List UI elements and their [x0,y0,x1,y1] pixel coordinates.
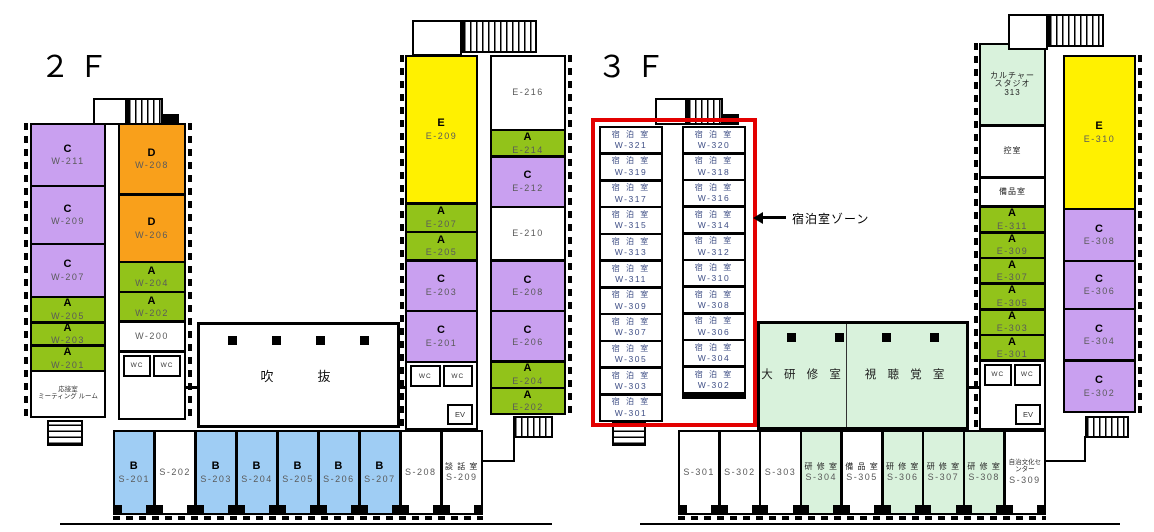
stairs-icon [513,416,553,438]
room-name: 宿 泊 室 [612,184,650,192]
wing-3f-west-right-column: 宿 泊 室W-320宿 泊 室W-318宿 泊 室W-316宿 泊 室W-314… [682,126,746,394]
room-code: E-202 [512,403,544,412]
room-W-309: 宿 泊 室W-309 [601,289,661,313]
room-name: A [1008,337,1017,349]
room-code: E-302 [1084,389,1116,398]
room-W-319: 宿 泊 室W-319 [601,155,661,179]
room-name: 宿 泊 室 [695,317,733,325]
room-code: S-202 [159,468,191,477]
wc-label: WC [123,355,151,377]
stair-vestibule [655,98,687,125]
room-S-202: S-202 [156,432,194,513]
wc-label: WC [410,365,441,387]
room-code: W-318 [698,168,730,177]
room-E-209: EE-209 [407,57,476,202]
room-name: 宿 泊 室 [695,291,733,299]
room-name: A [148,296,157,308]
room-name: A [1008,311,1017,323]
room-code: S-305 [846,473,878,482]
room-name: 談 話 室 [445,463,478,471]
room-E-306: CE-306 [1065,262,1134,308]
stair-vestibule [93,98,127,125]
room-W-312: 宿 泊 室W-312 [684,235,744,259]
room-code: E-304 [1084,337,1116,346]
room-code: E-311 [997,222,1028,231]
room-name: C [524,275,533,287]
room-name: 宿 泊 室 [612,318,650,326]
room-name: 宿 泊 室 [695,237,733,245]
room-W-204: AW-204 [120,263,184,290]
room-name: 研 修 室 [967,463,1000,471]
room-E-310: EE-310 [1065,57,1134,208]
wing-2f-west-left-column: CW-211CW-209CW-207AW-205AW-203AW-201応接室 … [30,123,106,418]
room-name: D [148,217,157,229]
room-name: C [1095,274,1104,286]
room-name: 宿 泊 室 [695,344,733,352]
room-code: W-207 [51,273,85,282]
room-code: E-203 [426,288,458,297]
room-W-211: CW-211 [32,125,104,185]
room-S-302: S-302 [721,432,759,513]
room-S-208: S-208 [402,432,440,513]
room-E-202: AE-202 [492,389,564,413]
room-name: D [148,148,157,160]
room-name: C [64,204,73,216]
room-name: 控室 [1004,147,1022,155]
room-name: A [64,324,73,335]
room-E-308: CE-308 [1065,210,1134,259]
room-name: 宿 泊 室 [695,264,733,272]
wall-block [682,394,746,399]
room-W-303: 宿 泊 室W-303 [601,369,661,393]
room-応接室ミーティングルーム: 応接室 ミーティング ルーム [32,372,104,416]
room-code: W-202 [135,309,169,318]
floor-plan-canvas: ２Ｆ CW-211CW-209CW-207AW-205AW-203AW-201応… [0,0,1154,532]
room-code: W-308 [698,301,730,310]
wing-3f-east-right-column: EE-310CE-308CE-306CE-304CE-302 [1063,55,1136,413]
corridor-line [483,460,515,462]
room-name: E [437,118,445,130]
room-name: 宿 泊 室 [612,211,650,219]
wing-3f-west-left-column: 宿 泊 室W-321宿 泊 室W-319宿 泊 室W-317宿 泊 室W-315… [599,126,663,422]
room-code: E-204 [512,377,544,386]
room-code: S-204 [241,475,273,484]
room-W-209: CW-209 [32,187,104,242]
room-code: W-306 [698,328,730,337]
room-code: W-209 [51,217,85,226]
room-name: A [1008,260,1017,272]
room-code: S-203 [200,475,232,484]
stairs-icon [1085,416,1129,438]
window-wall [188,123,192,420]
room-W-200: W-200 [120,323,184,350]
room-W-315: 宿 泊 室W-315 [601,208,661,232]
window-wall [678,516,1046,520]
floor-3f-title: ３Ｆ [597,42,673,86]
atrium: 吹 抜 [197,322,400,428]
room-S-206: BS-206 [320,432,358,513]
room-name: 研 修 室 [805,463,838,471]
room-W-208: DW-208 [120,125,184,193]
room-S-209: 談 話 室S-209 [443,432,481,513]
room-E-214: AE-214 [492,131,564,155]
room-name: 宿 泊 室 [612,238,650,246]
room-E-309: AE-309 [981,234,1044,257]
room-name: A [1008,285,1017,297]
room-S-303: S-303 [761,432,799,513]
room-name: C [524,170,533,182]
wall-block [721,114,739,125]
room-S-301: S-301 [680,432,718,513]
room-code: S-309 [1009,476,1041,485]
room-wc: WCWCEV [407,363,476,428]
room-code: S-306 [887,473,919,482]
corridor-line [399,386,406,389]
room-code: W-301 [615,409,647,418]
room-S-308: 研 修 室S-308 [965,432,1003,513]
room-name: B [130,461,139,473]
room-name: 宿 泊 室 [612,345,650,353]
room-code: W-317 [615,195,647,204]
room-name: カルチャー スタジオ 313 [990,72,1035,97]
room-name: 宿 泊 室 [612,372,650,380]
room-W-321: 宿 泊 室W-321 [601,128,661,152]
room-name: A [1008,234,1017,246]
stairs-icon [127,98,163,125]
room-code: W-310 [698,274,730,283]
elevator-label: EV [1015,404,1041,425]
room-E-216: E-216 [492,57,564,129]
room-code: E-307 [997,273,1029,282]
wing-2f-east-right-column: E-216AE-214CE-212E-210CE-208CE-206AE-204… [490,55,566,415]
room-S-304: 研 修 室S-304 [802,432,840,513]
room-E-311: AE-311 [981,208,1044,231]
room-code: W-320 [698,141,730,150]
room-S-309: 自治文化センターS-309 [1006,432,1044,513]
atrium-label: 吹 抜 [260,366,336,385]
room-name: 大 研 修 室 [761,369,845,381]
room-S-203: BS-203 [197,432,235,513]
wall-block [161,114,179,125]
room-code: E-309 [997,247,1029,256]
room-name: 応接室 ミーティング ルーム [38,387,98,401]
room-E-203: CE-203 [407,262,476,310]
room-S-205: BS-205 [279,432,317,513]
room-name: 研 修 室 [886,463,919,471]
room-name: C [437,325,446,337]
room-code: S-206 [323,475,355,484]
room-name: C [64,259,73,271]
wing-2f-south-row: BS-201S-202BS-203BS-204BS-205BS-206BS-20… [113,430,483,515]
room-name: 研 修 室 [927,463,960,471]
room-name: 宿 泊 室 [695,371,733,379]
room-code: E-210 [512,229,544,238]
elevator-label: EV [447,404,473,425]
room-code: E-212 [512,184,544,193]
stairs-icon [1048,14,1104,47]
room-W-301: 宿 泊 室W-301 [601,396,661,420]
room-name: 宿 泊 室 [695,157,733,165]
corridor-line [1084,436,1086,462]
room-E-206: CE-206 [492,312,564,360]
room-code: S-205 [282,475,314,484]
room-E-208: CE-208 [492,262,564,310]
room-code: E-310 [1084,135,1116,144]
stair-vestibule [1008,14,1048,50]
room-code: E-301 [997,350,1029,359]
stairs-icon [462,20,537,53]
room-code: W-307 [615,328,647,337]
room-E-302: CE-302 [1065,362,1134,411]
room-W-207: CW-207 [32,245,104,296]
room-name: A [524,132,533,144]
wing-2f-east-left-column: EE-209AE-207AE-205CE-203CE-201WCWCEV [405,55,478,430]
room-E-201: CE-201 [407,312,476,360]
room-name: B [375,461,384,473]
floor-2f-title: ２Ｆ [40,42,116,86]
window-wall [400,55,404,430]
room-W-316: 宿 泊 室W-316 [684,181,744,205]
room-name: 宿 泊 室 [612,265,650,273]
room-name: 宿 泊 室 [612,291,650,299]
room-E-210: E-210 [492,208,564,259]
wc-area: WCWC [984,364,1041,386]
room-wc: WCWCEV [981,362,1044,428]
room-code: S-304 [806,473,838,482]
room-code: S-308 [968,473,1000,482]
room-code: S-209 [446,473,478,482]
room-E-301: AE-301 [981,336,1044,359]
room-name: 宿 泊 室 [612,398,650,406]
wing-3f-east-left-column: カルチャー スタジオ 313控室備品室AE-311AE-309AE-307AE-… [979,43,1046,430]
room-code: E-306 [1084,287,1116,296]
room-code: S-302 [724,468,756,477]
room-name: 視 聴 覚 室 [865,369,949,381]
room-E-304: CE-304 [1065,310,1134,359]
room-name: A [524,363,533,375]
room-name: C [524,325,533,337]
room-code: W-208 [135,161,169,170]
room-W-317: 宿 泊 室W-317 [601,182,661,206]
room-W-203: AW-203 [32,324,104,345]
room-name: A [64,347,73,359]
room-code: E-205 [426,248,458,257]
room-wc: WCWC [120,353,184,418]
room-E-307: AE-307 [981,259,1044,282]
room-code: S-307 [928,473,960,482]
room-code: W-302 [698,381,730,390]
lodging-zone-arrow-icon [762,216,786,219]
room-name: 自治文化センター [1006,460,1044,474]
room-code: W-211 [51,157,84,166]
room-備品室: 備品室 [981,179,1044,205]
wc-area: WCWC [410,365,473,387]
room-S-207: BS-207 [361,432,399,513]
room-name: C [1095,324,1104,336]
stairs-icon [47,420,83,446]
room-name: A [437,235,446,247]
room-code: S-201 [118,475,150,484]
room-code: E-201 [426,339,458,348]
room-name: C [437,274,446,286]
room-code: W-206 [135,231,169,240]
room-W-320: 宿 泊 室W-320 [684,128,744,152]
corridor-line [969,386,980,389]
room-E-207: AE-207 [407,205,476,231]
room-code: S-208 [405,468,437,477]
corridor-line [186,386,198,389]
room-W-202: AW-202 [120,293,184,320]
window-wall [974,43,978,430]
room-code: E-216 [512,88,544,97]
room-W-205: AW-205 [32,298,104,321]
room-name: B [212,461,221,473]
room-code: W-201 [51,361,85,370]
room-W-302: 宿 泊 室W-302 [684,368,744,392]
room-W-201: AW-201 [32,347,104,370]
room-code: W-304 [698,354,730,363]
room-W-306: 宿 泊 室W-306 [684,315,744,339]
room-W-310: 宿 泊 室W-310 [684,261,744,285]
room-W-311: 宿 泊 室W-311 [601,262,661,286]
room-S-305: 備 品 室S-305 [843,432,881,513]
room-W-314: 宿 泊 室W-314 [684,208,744,232]
room-name: A [64,298,73,310]
room-code: E-206 [512,338,544,347]
room-name: A [1008,208,1017,220]
room-code: S-301 [683,468,715,477]
room-code: W-319 [615,168,647,177]
room-name: 備 品 室 [845,463,878,471]
room-name: 宿 泊 室 [612,157,650,165]
stair-vestibule [412,20,462,56]
room-name: 宿 泊 室 [612,131,650,139]
room-E-303: AE-303 [981,311,1044,334]
room-name: 宿 泊 室 [695,131,733,139]
room-code: W-200 [135,332,169,341]
room-code: W-303 [615,382,647,391]
room-code: W-314 [698,221,730,230]
room-W-308: 宿 泊 室W-308 [684,288,744,312]
wing-2f-west-right-column: DW-208DW-206AW-204AW-202W-200WCWC [118,123,186,420]
room-W-307: 宿 泊 室W-307 [601,315,661,339]
room-カルチャースタジオ313: カルチャー スタジオ 313 [981,45,1044,124]
room-code: E-308 [1084,237,1116,246]
room-W-304: 宿 泊 室W-304 [684,341,744,365]
room-W-313: 宿 泊 室W-313 [601,235,661,259]
exterior-wall-line [60,523,552,525]
room-code: W-205 [51,312,85,321]
room-code: S-303 [765,468,797,477]
room-code: W-305 [615,355,647,364]
room-code: S-207 [364,475,396,484]
room-E-305: AE-305 [981,285,1044,308]
room-code: W-311 [615,275,647,284]
room-W-318: 宿 泊 室W-318 [684,155,744,179]
wc-label: WC [984,364,1012,386]
room-code: E-303 [997,324,1029,333]
room-name: 備品室 [999,188,1026,196]
window-wall [568,55,572,415]
corridor-line [513,436,515,462]
column-pillars [228,336,370,345]
room-code: E-207 [426,220,458,229]
exterior-wall-line [640,523,1120,525]
room-S-201: BS-201 [115,432,153,513]
room-W-206: DW-206 [120,196,184,261]
room-name: 宿 泊 室 [695,211,733,219]
room-code: W-313 [615,248,647,257]
column-pillars [787,333,939,342]
room-name: 宿 泊 室 [695,184,733,192]
room-name: E [1095,121,1103,133]
room-code: W-316 [698,194,730,203]
room-name: C [1095,375,1104,387]
room-code: E-208 [512,288,544,297]
room-W-305: 宿 泊 室W-305 [601,342,661,366]
room-name: C [64,144,73,156]
room-name: C [1095,224,1104,236]
room-E-205: AE-205 [407,233,476,259]
wc-label: WC [153,355,181,377]
room-code: W-309 [615,302,647,311]
room-code: E-209 [426,132,458,141]
window-wall [113,516,483,520]
room-code: W-315 [615,221,647,230]
room-code: E-214 [512,146,544,155]
room-name: A [437,206,446,218]
wing-3f-south-row: S-301S-302S-303研 修 室S-304備 品 室S-305研 修 室… [678,430,1046,515]
wc-label: WC [443,365,474,387]
window-wall [24,123,28,418]
wc-label: WC [1014,364,1042,386]
room-code: W-312 [698,248,730,257]
stairs-icon [687,98,723,125]
room-name: B [334,461,343,473]
room-code: E-305 [997,299,1029,308]
room-S-306: 研 修 室S-306 [884,432,922,513]
lodging-zone-annotation: 宿泊室ゾーン [792,210,869,227]
room-S-307: 研 修 室S-307 [924,432,962,513]
room-code: W-321 [615,141,647,150]
wc-area: WCWC [123,355,181,377]
room-code: W-204 [135,279,169,288]
room-E-212: CE-212 [492,158,564,206]
room-name: A [524,390,533,402]
room-code: W-203 [51,336,85,344]
window-wall [1138,55,1142,413]
room-S-204: BS-204 [238,432,276,513]
room-E-204: AE-204 [492,363,564,387]
room-name: B [293,461,302,473]
room-name: B [253,461,262,473]
room-控室: 控室 [981,127,1044,177]
corridor-line [1046,460,1086,462]
stairs-icon [612,422,646,446]
room-name: A [148,266,157,278]
